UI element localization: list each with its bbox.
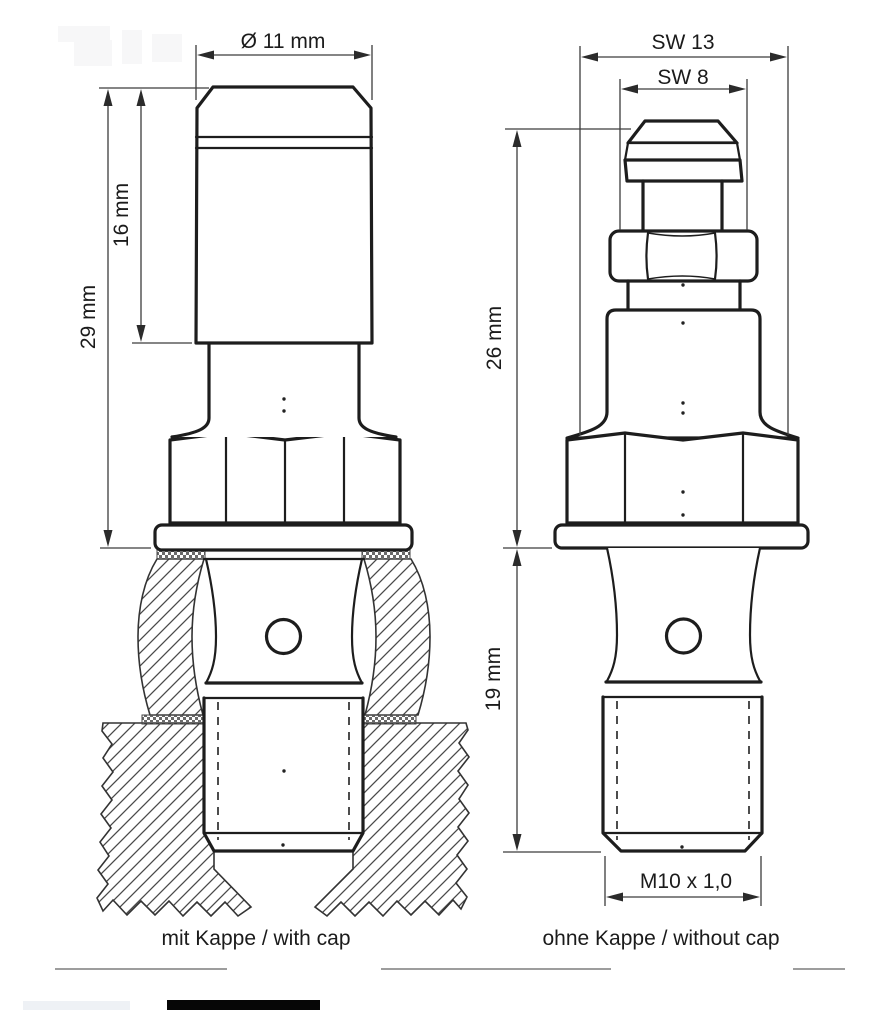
thread-section: [603, 681, 762, 851]
right-view-without-cap: SW 13 SW 8 26 mm 19 mm: [482, 31, 808, 950]
hex-small-label: SW 8: [657, 66, 708, 89]
thread-length-label: 19 mm: [482, 647, 505, 711]
faint-watermark: [58, 26, 182, 66]
dimension-total-height: 29 mm: [77, 89, 151, 548]
dimension-thread-spec: M10 x 1,0: [605, 856, 761, 906]
thread-section: [204, 683, 363, 851]
dimension-cap-height: 16 mm: [99, 88, 209, 343]
technical-drawing-page: Ø 11 mm 16 mm 29 mm mit Kappe / with cap: [0, 0, 880, 1010]
banjo-hatch-left: [138, 559, 204, 715]
seal-strip: [142, 715, 204, 724]
seal-strip: [364, 715, 416, 724]
flange: [555, 525, 808, 548]
banjo-hatch-right: [364, 559, 430, 715]
bleeder-tip-ring: [625, 143, 740, 160]
bottom-bar-light: [23, 1001, 130, 1010]
right-view-caption: ohne Kappe / without cap: [542, 927, 779, 950]
thread-spec-label: M10 x 1,0: [640, 870, 732, 893]
hex-nut: [567, 433, 798, 523]
hex-large-label: SW 13: [651, 31, 714, 54]
bleed-valve-drawing: Ø 11 mm 16 mm 29 mm mit Kappe / with cap: [0, 0, 880, 1010]
cap-height-label: 16 mm: [110, 183, 133, 247]
small-hex-nut: [610, 231, 757, 281]
upper-height-label: 26 mm: [483, 306, 506, 370]
valve-neck: [172, 343, 396, 437]
spool-body: [607, 548, 760, 681]
bottom-bar-black: [167, 1000, 320, 1010]
valve-body: [567, 310, 798, 438]
left-view-with-cap: Ø 11 mm 16 mm 29 mm mit Kappe / with cap: [77, 30, 469, 950]
dimension-thread-length: 19 mm: [482, 549, 601, 852]
bleeder-tip-ring: [625, 160, 742, 181]
bleeder-tip: [628, 121, 737, 143]
left-view-caption: mit Kappe / with cap: [161, 927, 350, 950]
protective-cap: [196, 87, 372, 343]
diameter-label: Ø 11 mm: [241, 30, 326, 53]
flange: [155, 525, 412, 550]
total-height-label: 29 mm: [77, 285, 100, 349]
